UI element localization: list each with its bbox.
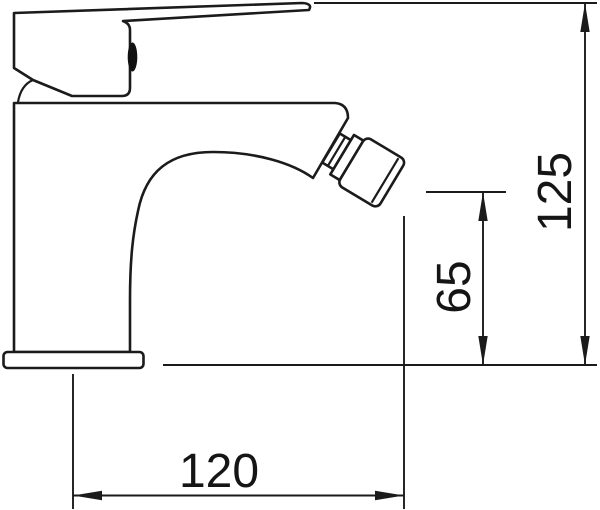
handle-collar-curve — [18, 80, 33, 102]
base-plate — [4, 352, 144, 368]
arrowhead-up-icon — [478, 192, 487, 221]
handle-indicator-dot — [128, 43, 138, 72]
handle-lever-outline — [14, 3, 310, 96]
reference-lines — [73, 3, 597, 509]
arrowhead-up-icon — [580, 3, 589, 32]
dimension-outlet-height: 65 — [428, 192, 488, 365]
faucet-outline — [4, 3, 407, 368]
dimension-label-65: 65 — [428, 260, 481, 313]
spout-body-outline — [14, 103, 348, 352]
arrowhead-left-icon — [73, 491, 102, 500]
dimension-overall-depth: 120 — [73, 445, 404, 500]
bidet-mixer-technical-drawing: 125 65 120 — [0, 0, 600, 510]
technical-drawing-page: 125 65 120 — [0, 0, 600, 510]
arrowhead-down-icon — [478, 336, 487, 365]
dimension-label-125: 125 — [529, 152, 582, 232]
dimension-label-120: 120 — [179, 445, 259, 498]
dimension-overall-height: 125 — [529, 3, 590, 365]
arrowhead-down-icon — [580, 336, 589, 365]
arrowhead-right-icon — [375, 491, 404, 500]
